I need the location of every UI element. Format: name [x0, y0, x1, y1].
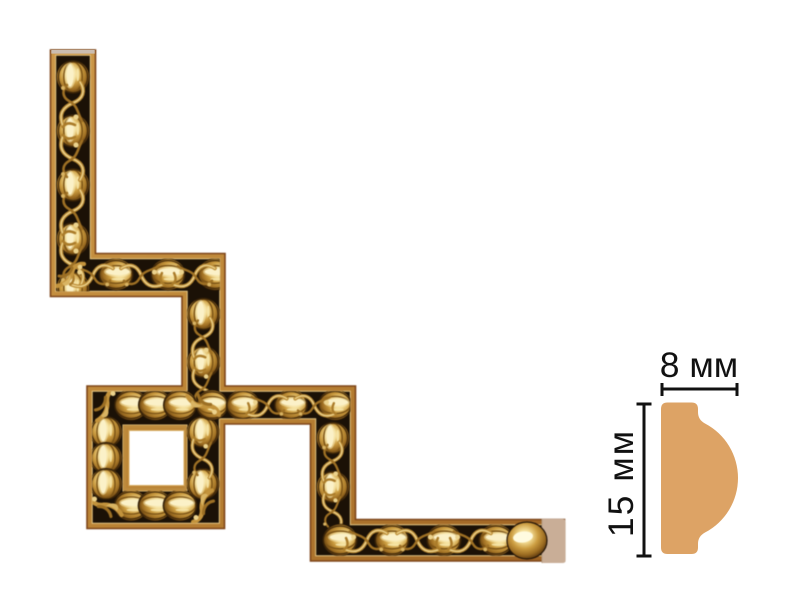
svg-text:8 мм: 8 мм — [660, 345, 738, 385]
svg-text:15 мм: 15 мм — [601, 429, 641, 537]
